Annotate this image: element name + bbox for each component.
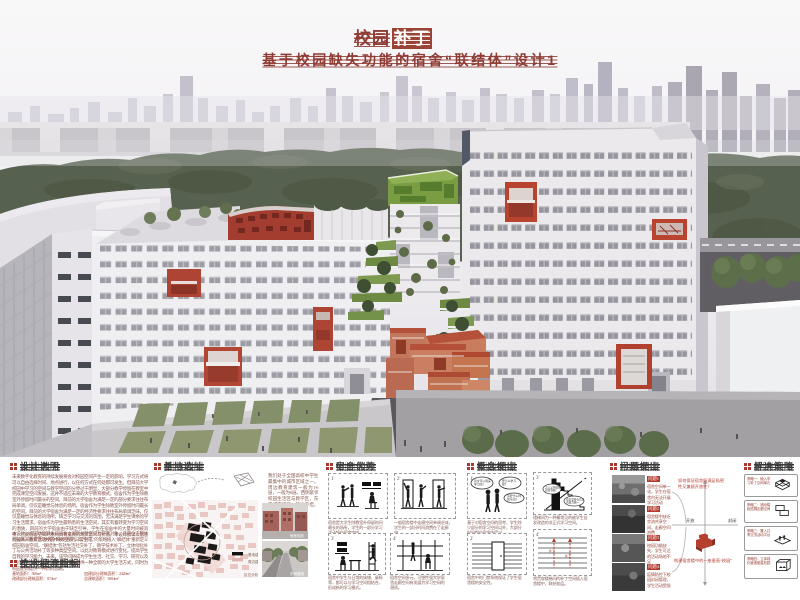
svg-text:3': 3'	[331, 537, 335, 542]
svg-text:构建宿舍楼中的一座垂直“校园”: 构建宿舍楼中的一座垂直“校园”	[674, 557, 732, 564]
svg-text:需要什么样: 需要什么样	[507, 494, 521, 498]
svg-text:要怎么学习: 要怎么学习	[502, 479, 516, 483]
svg-text:宿舍可以用来: 宿舍可以用来	[474, 479, 491, 483]
svg-text:宿舍现状: 宿舍现状	[290, 533, 304, 538]
svg-text:4': 4'	[536, 533, 540, 538]
svg-text:东侧道路: 东侧道路	[290, 571, 304, 576]
svg-text:的地方啊～: 的地方啊～	[566, 501, 579, 505]
svg-text:补丁: 补丁	[549, 548, 555, 553]
svg-text:3': 3'	[536, 476, 540, 481]
svg-text:区位分析: 区位分析	[244, 572, 258, 577]
svg-text:2': 2'	[470, 537, 474, 542]
svg-text:4': 4'	[393, 537, 397, 542]
svg-text:1': 1'	[331, 477, 335, 482]
svg-text:周边建筑: 周边建筑	[248, 559, 258, 564]
svg-text:封闭: 封闭	[728, 517, 736, 524]
svg-text:开放: 开放	[686, 517, 695, 524]
svg-text:2': 2'	[397, 477, 401, 482]
svg-text:性又兼顾开放性？: 性又兼顾开放性？	[678, 483, 712, 490]
svg-text:如何保证宿舍既满足私密: 如何保证宿舍既满足私密	[678, 477, 724, 484]
svg-text:间背书啊！: 间背书啊！	[545, 489, 558, 493]
svg-text:学习吗？: 学习吗？	[474, 482, 485, 486]
svg-text:基地建筑: 基地建筑	[248, 552, 258, 557]
svg-text:补丁: 补丁	[565, 553, 571, 558]
svg-text:呢？: 呢？	[502, 482, 508, 486]
svg-text:的空间？: 的空间？	[507, 497, 518, 501]
